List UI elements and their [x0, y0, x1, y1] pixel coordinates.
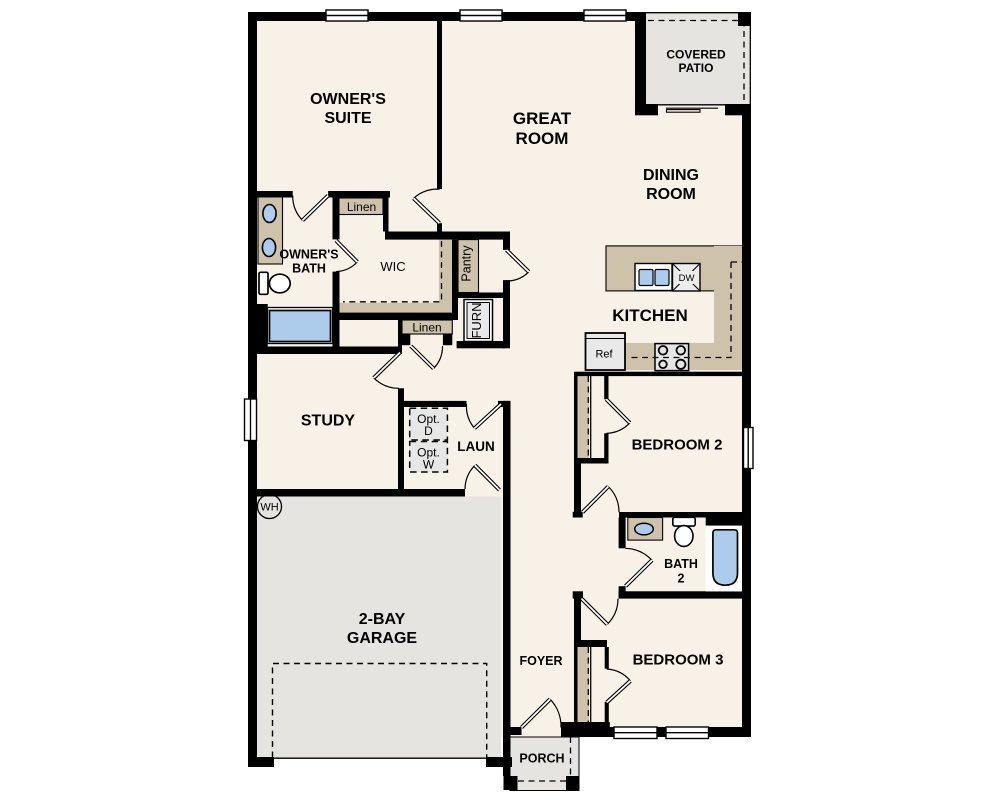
svg-text:WIC: WIC: [380, 259, 405, 274]
svg-text:Ref: Ref: [595, 349, 613, 361]
svg-text:OWNER'S: OWNER'S: [279, 248, 338, 262]
svg-text:DINING: DINING: [643, 167, 699, 184]
svg-text:ROOM: ROOM: [646, 186, 696, 203]
svg-text:D: D: [424, 424, 433, 438]
svg-text:Pantry: Pantry: [460, 245, 474, 282]
svg-text:2-BAY: 2-BAY: [359, 611, 406, 628]
svg-text:W: W: [423, 458, 435, 472]
svg-text:COVERED: COVERED: [666, 48, 726, 62]
svg-text:BATH: BATH: [292, 262, 326, 276]
svg-text:KITCHEN: KITCHEN: [612, 306, 688, 325]
svg-text:DW: DW: [679, 273, 695, 284]
svg-text:GARAGE: GARAGE: [347, 630, 418, 647]
svg-text:BATH: BATH: [664, 557, 698, 571]
svg-text:SUITE: SUITE: [324, 110, 371, 127]
svg-text:Linen: Linen: [347, 200, 376, 214]
svg-text:GREAT: GREAT: [513, 109, 572, 128]
svg-text:BEDROOM 3: BEDROOM 3: [633, 652, 724, 669]
svg-text:LAUN: LAUN: [457, 439, 495, 454]
svg-text:ROOM: ROOM: [516, 129, 569, 148]
svg-text:2: 2: [678, 572, 685, 586]
svg-text:FOYER: FOYER: [519, 654, 562, 668]
svg-text:PATIO: PATIO: [679, 61, 714, 75]
svg-text:Linen: Linen: [412, 321, 441, 335]
svg-text:STUDY: STUDY: [301, 413, 356, 430]
svg-text:PORCH: PORCH: [519, 752, 564, 766]
svg-text:WH: WH: [260, 502, 278, 514]
svg-text:BEDROOM 2: BEDROOM 2: [632, 437, 723, 454]
svg-text:OWNER'S: OWNER'S: [310, 91, 386, 108]
svg-text:FURN: FURN: [469, 302, 484, 338]
